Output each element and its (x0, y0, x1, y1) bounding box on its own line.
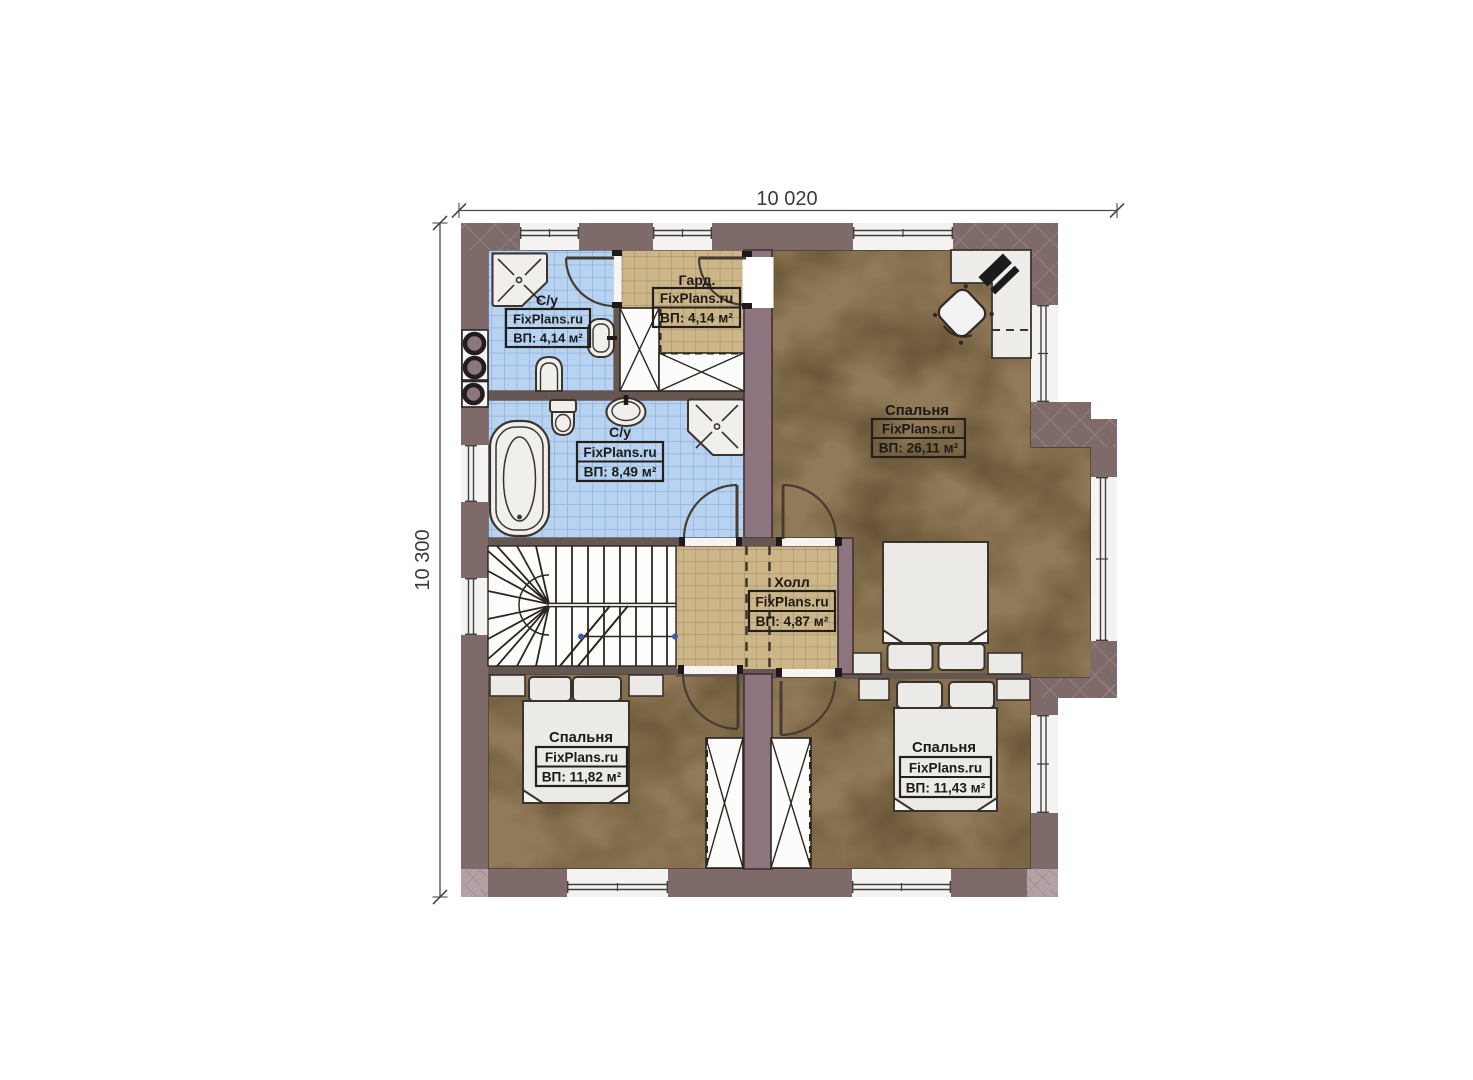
svg-text:ВП: 4,14 м²: ВП: 4,14 м² (513, 331, 583, 346)
svg-text:С/у: С/у (609, 425, 631, 441)
svg-text:FixPlans.ru: FixPlans.ru (909, 761, 982, 776)
svg-text:ВП: 4,14 м²: ВП: 4,14 м² (660, 311, 733, 326)
svg-text:ВП: 8,49 м²: ВП: 8,49 м² (584, 465, 657, 480)
svg-text:С/у: С/у (536, 293, 558, 309)
svg-text:ВП: 11,82 м²: ВП: 11,82 м² (542, 770, 622, 785)
svg-text:FixPlans.ru: FixPlans.ru (660, 291, 733, 306)
svg-text:10 300: 10 300 (412, 529, 434, 590)
svg-text:FixPlans.ru: FixPlans.ru (755, 595, 828, 610)
svg-text:FixPlans.ru: FixPlans.ru (882, 422, 955, 437)
svg-text:FixPlans.ru: FixPlans.ru (545, 750, 618, 765)
svg-text:Холл: Холл (774, 575, 810, 591)
svg-text:ВП: 11,43 м²: ВП: 11,43 м² (906, 781, 986, 796)
svg-text:FixPlans.ru: FixPlans.ru (513, 312, 583, 327)
svg-text:ВП: 4,87 м²: ВП: 4,87 м² (756, 614, 829, 629)
svg-text:10 020: 10 020 (756, 188, 817, 210)
svg-text:FixPlans.ru: FixPlans.ru (583, 445, 656, 460)
svg-text:ВП: 26,11 м²: ВП: 26,11 м² (879, 441, 959, 456)
svg-text:Гард.: Гард. (678, 273, 715, 289)
svg-text:Спальня: Спальня (885, 403, 949, 419)
svg-text:Спальня: Спальня (549, 730, 613, 746)
svg-text:Спальня: Спальня (912, 740, 976, 756)
